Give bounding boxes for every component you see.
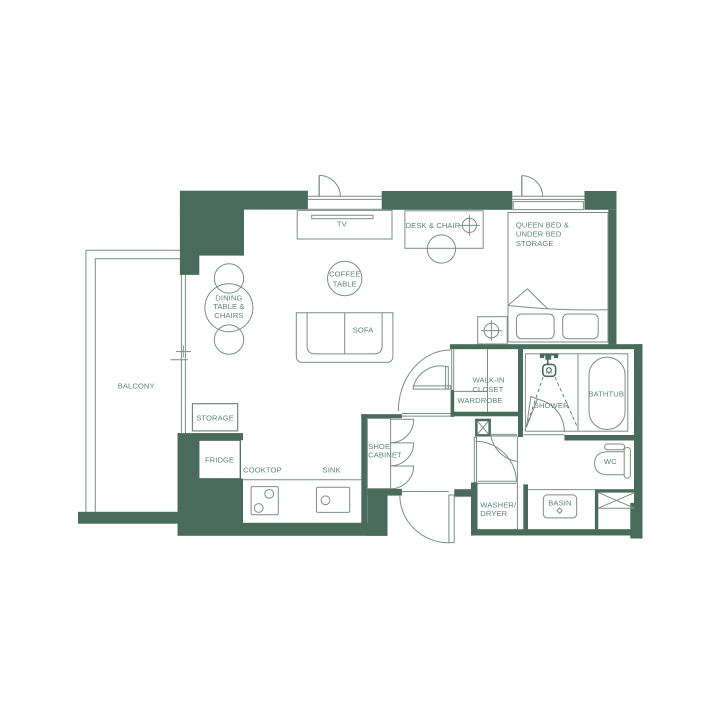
svg-text:SHOWER: SHOWER xyxy=(534,401,569,410)
svg-text:CLOSET: CLOSET xyxy=(472,385,503,394)
svg-text:TABLE &: TABLE & xyxy=(213,302,244,311)
svg-text:QUEEN BED &: QUEEN BED & xyxy=(516,221,569,230)
svg-text:WALK-IN: WALK-IN xyxy=(473,375,505,384)
svg-text:TABLE: TABLE xyxy=(333,279,357,288)
svg-text:SOFA: SOFA xyxy=(353,325,374,334)
svg-text:BASIN: BASIN xyxy=(548,499,571,508)
svg-text:WC: WC xyxy=(604,457,617,466)
svg-text:STORAGE: STORAGE xyxy=(516,239,554,248)
svg-text:COOKTOP: COOKTOP xyxy=(243,465,282,474)
svg-text:FRIDGE: FRIDGE xyxy=(205,455,234,464)
svg-text:COFFEE: COFFEE xyxy=(329,270,360,279)
svg-text:DINING: DINING xyxy=(215,293,242,302)
svg-text:BATHTUB: BATHTUB xyxy=(588,390,624,399)
svg-text:SINK: SINK xyxy=(323,465,341,474)
svg-text:DRYER: DRYER xyxy=(480,509,507,518)
svg-text:BALCONY: BALCONY xyxy=(118,381,155,390)
svg-text:TV: TV xyxy=(337,220,348,229)
svg-text:STORAGE: STORAGE xyxy=(196,413,234,422)
svg-text:WARDROBE: WARDROBE xyxy=(457,396,502,405)
svg-text:CHAIRS: CHAIRS xyxy=(214,311,243,320)
svg-text:DESK & CHAIR: DESK & CHAIR xyxy=(406,221,461,230)
svg-text:CABINET: CABINET xyxy=(368,451,402,460)
svg-text:UNDER BED: UNDER BED xyxy=(516,230,562,239)
